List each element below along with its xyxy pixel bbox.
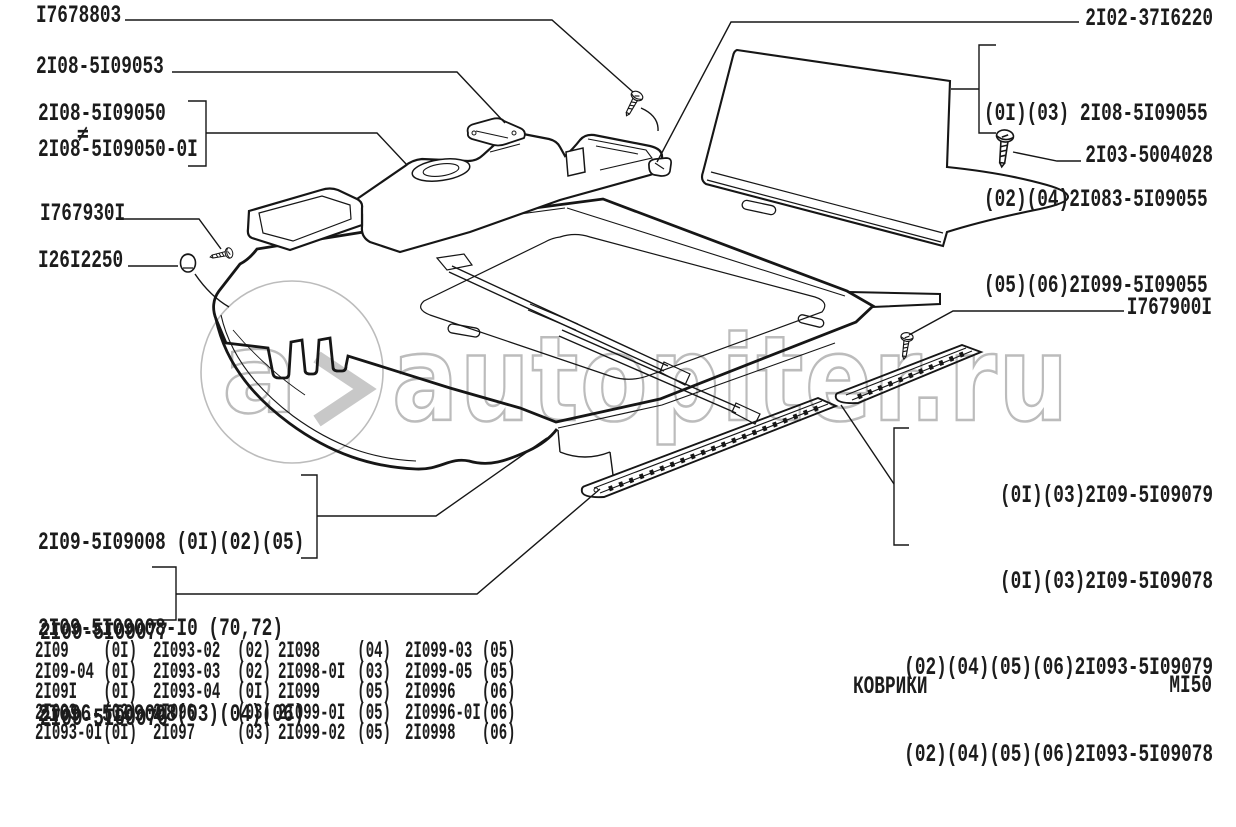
callout-line: (0I)(03)2I09-5I09078 <box>904 568 1213 597</box>
model-code: 2I0998 <box>405 723 482 744</box>
callout-line: (02)(04)(05)(06)2I093-5I09078 <box>904 741 1213 770</box>
page-caption: КОВРИКИ <box>853 674 928 699</box>
callout-3716220: 2I02-37I6220 <box>1085 6 1213 31</box>
callout-line: 2I09-5I09008 (0I)(02)(05) <box>38 529 304 558</box>
model-code: 2I097 <box>153 723 237 744</box>
variant-code: (0I) <box>103 723 137 744</box>
screw-767930-icon <box>209 247 234 262</box>
watermark-logo: a <box>201 281 383 463</box>
callout-line: (02)(04)2I083-5I09055 <box>984 186 1208 215</box>
table-row: 2I097(03) <box>153 723 271 744</box>
callout-line: (0I)(03)2I09-5I09079 <box>904 482 1213 511</box>
tunnel-clip-part <box>649 158 671 176</box>
callout-7678803: I7678803 <box>36 3 121 28</box>
applicability-column-1: 2I09(0I)2I09-04(0I)2I09I(0I)2I093(02)2I0… <box>35 641 137 744</box>
callout-5004028: 2I03-5004028 <box>1085 143 1213 168</box>
screw-7678803-icon <box>621 89 644 118</box>
table-row: 2I0998(06) <box>405 723 516 744</box>
table-row: 2I099-02(05) <box>278 723 391 744</box>
callout-767930: I767930I <box>40 201 125 226</box>
applicability-column-4: 2I099-03(05)2I099-05(05)2I0996(06)2I0996… <box>405 641 516 744</box>
sheet-code: МI50 <box>1169 673 1212 698</box>
grommet-1261250-icon <box>181 254 196 272</box>
callout-767900: I767900I <box>1127 295 1212 320</box>
callout-5109050-01: 2I08-5I09050-0I <box>38 137 198 162</box>
callout-line: (02)(04)(05)(06)2I093-5I09079 <box>904 654 1213 683</box>
variant-code: (05) <box>357 723 391 744</box>
small-bracket-part <box>468 118 525 145</box>
model-code: 2I093-0I <box>35 723 103 744</box>
callout-5109053: 2I08-5I09053 <box>36 54 164 79</box>
tunnel-mat-part <box>248 133 662 252</box>
catalog-page: a autopiter.ru <box>0 0 1236 749</box>
callout-1261250: I26I2250 <box>38 248 123 273</box>
watermark-arrow-icon <box>317 357 365 421</box>
model-code: 2I099-02 <box>278 723 357 744</box>
callout-group-sill-plates: (0I)(03)2I09-5I09079 (0I)(03)2I09-5I0907… <box>904 424 1213 827</box>
applicability-column-2: 2I093-02(02)2I093-03(02)2I093-04(0I)2I09… <box>153 641 271 744</box>
callout-line: (0I)(03) 2I08-5I09055 <box>984 100 1208 129</box>
variant-code: (03) <box>237 723 271 744</box>
variant-code: (06) <box>482 723 516 744</box>
applicability-column-3: 2I098(04)2I098-0I(03)2I099(05)2I099-0I(0… <box>278 641 391 744</box>
table-row: 2I093-0I(0I) <box>35 723 137 744</box>
callout-5109050: 2I08-5I09050 <box>38 101 166 126</box>
